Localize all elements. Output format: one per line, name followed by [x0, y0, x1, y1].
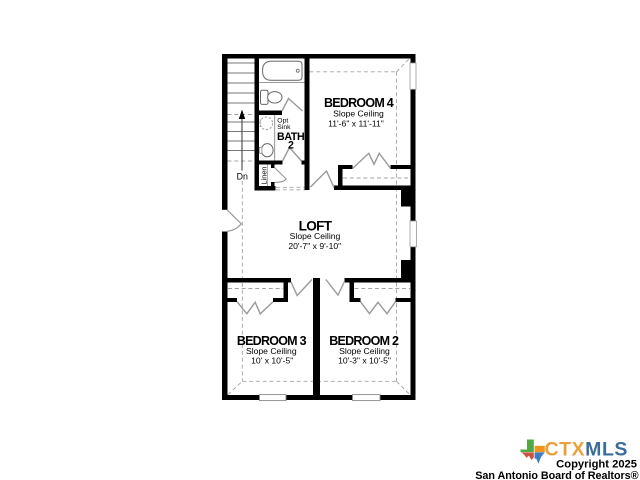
svg-text:CTXMLS: CTXMLS	[545, 439, 628, 461]
svg-text:Linen: Linen	[260, 166, 269, 184]
svg-text:11'-6" x 11'-11": 11'-6" x 11'-11"	[328, 118, 384, 128]
svg-text:San Antonio Board of Realtors®: San Antonio Board of Realtors®	[475, 470, 638, 480]
svg-text:20'-7" x 9'-10": 20'-7" x 9'-10"	[288, 241, 341, 251]
svg-text:10'-3" x 10'-5": 10'-3" x 10'-5"	[338, 355, 391, 365]
svg-text:Slope Ceiling: Slope Ceiling	[333, 108, 384, 118]
svg-text:Copyright 2025: Copyright 2025	[556, 459, 637, 471]
svg-text:Dn: Dn	[237, 171, 248, 181]
svg-text:Slope Ceiling: Slope Ceiling	[290, 231, 341, 241]
svg-text:2: 2	[288, 140, 294, 152]
svg-text:10' x 10'-5": 10' x 10'-5"	[251, 355, 293, 365]
